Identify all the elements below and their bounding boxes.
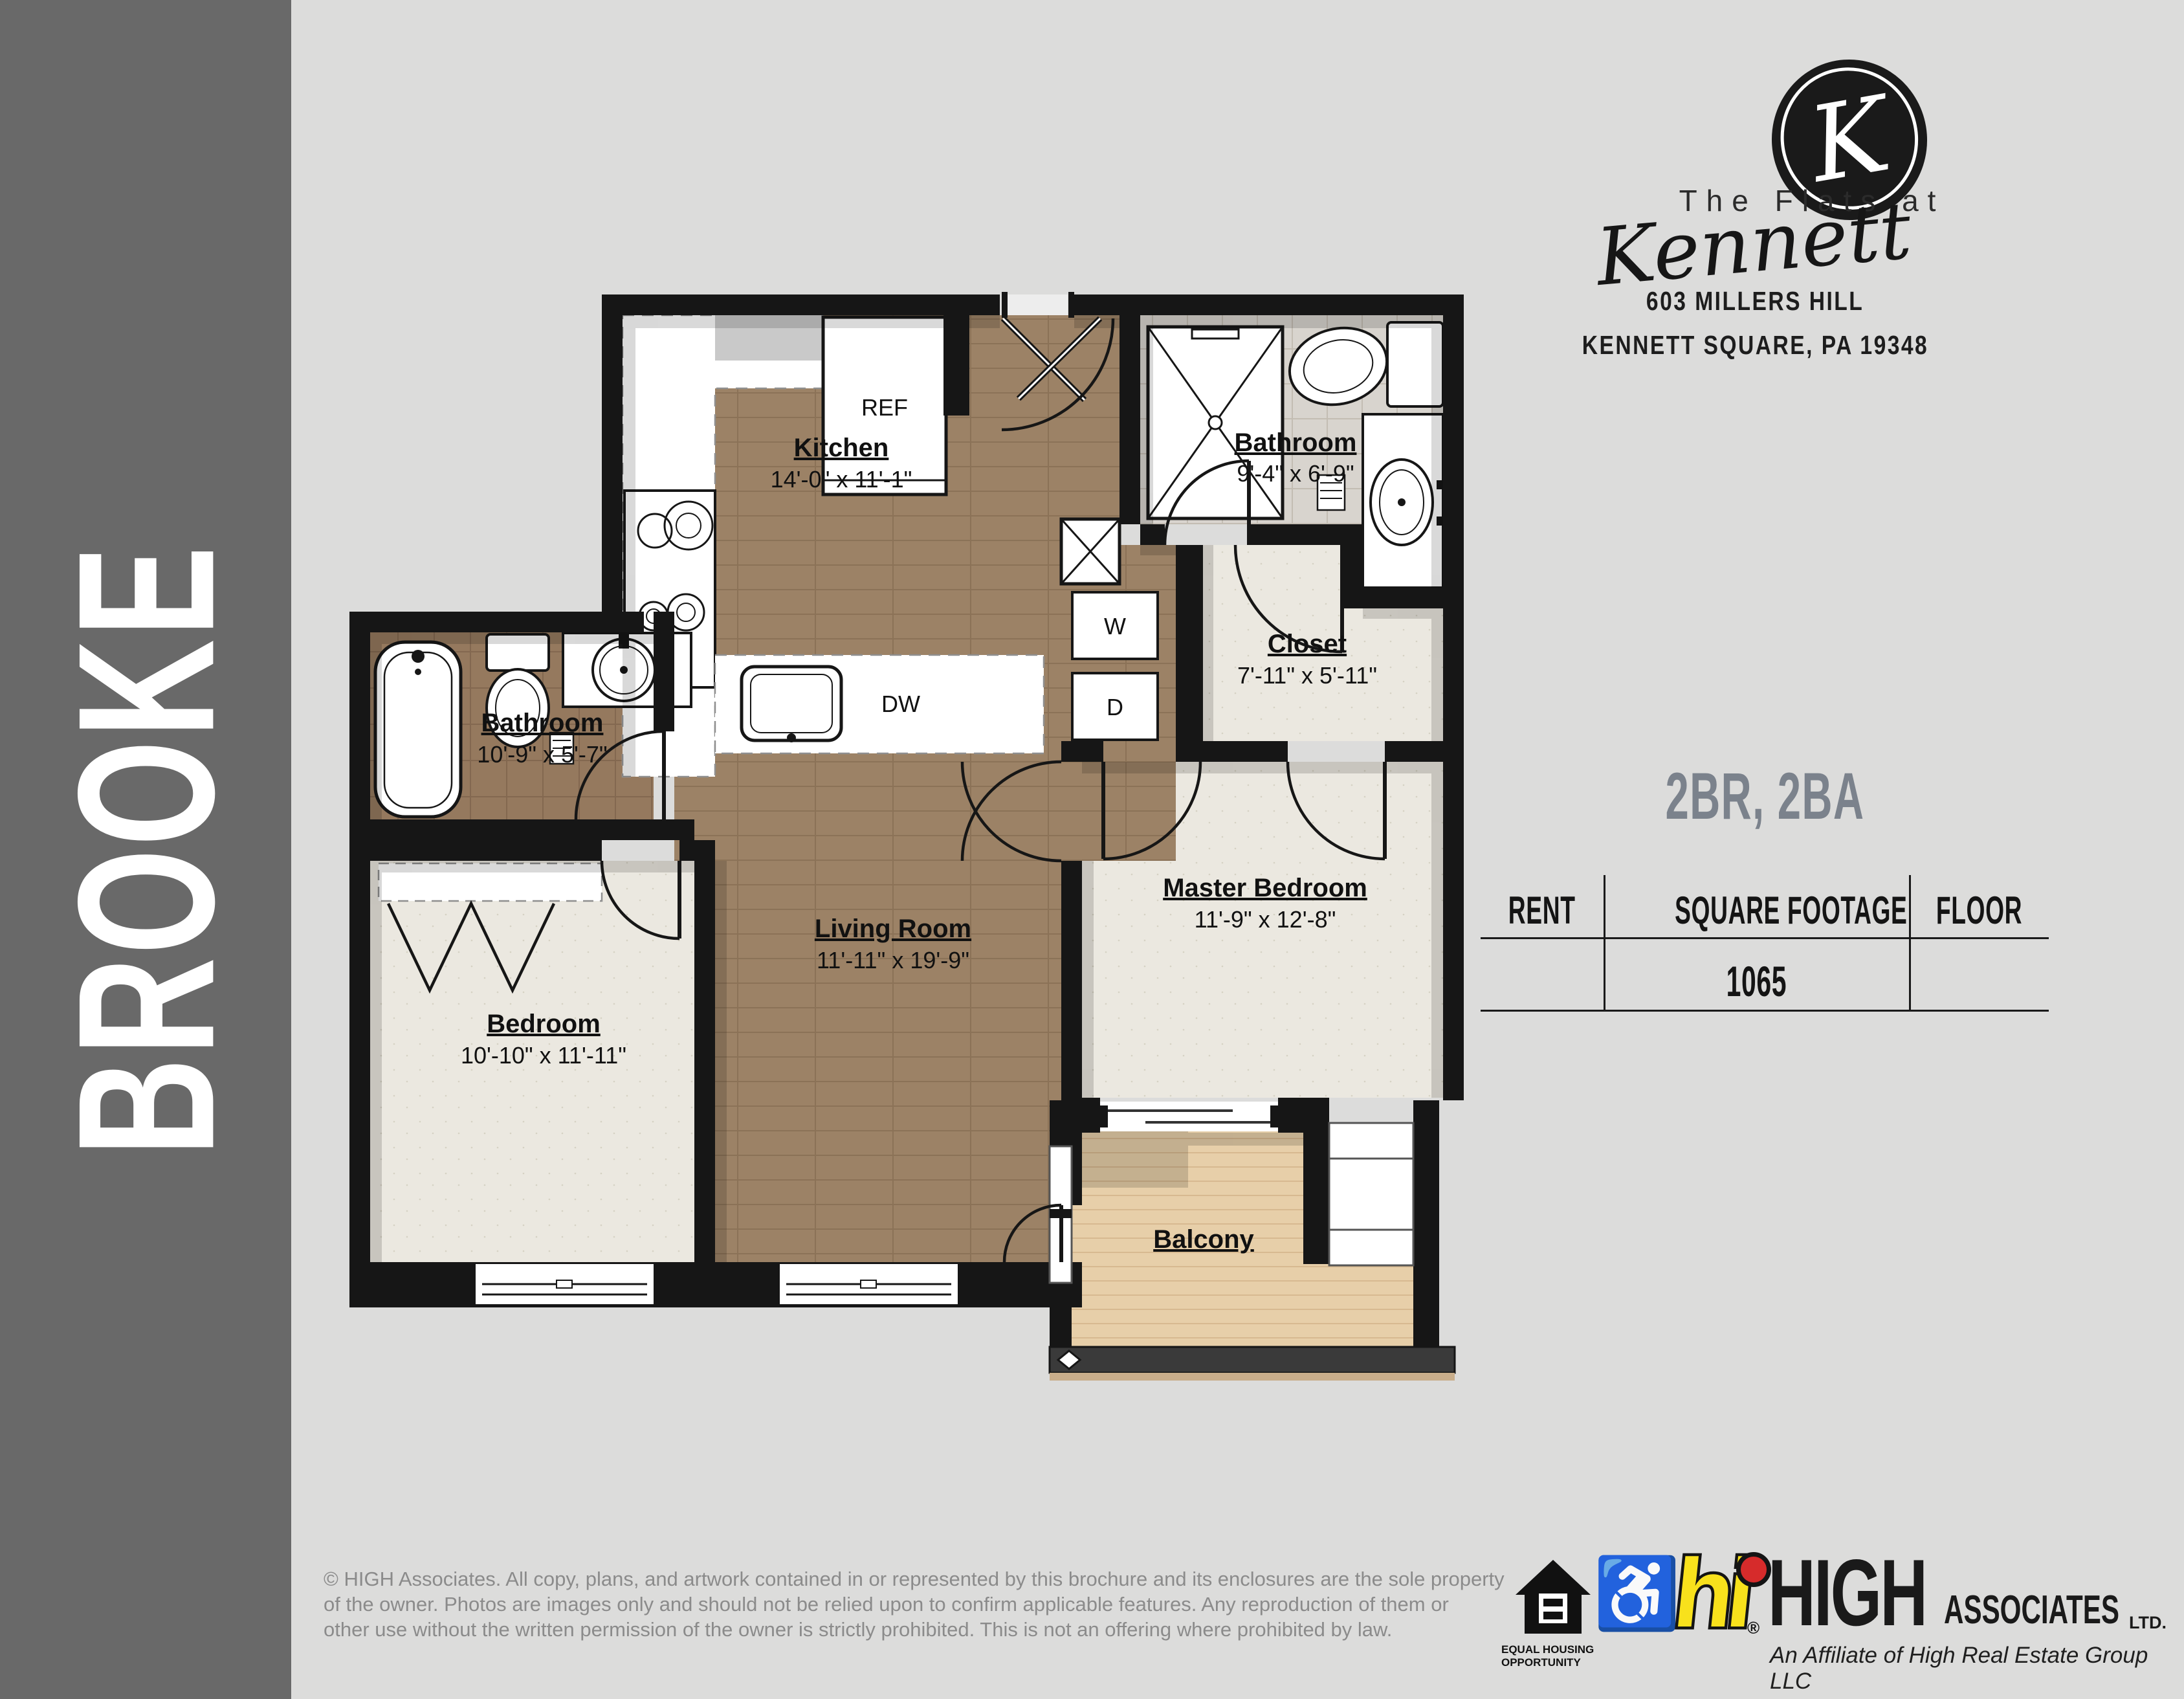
high-logo-ltd: LTD. <box>2129 1613 2167 1633</box>
accessibility-icon: ♿ <box>1593 1559 1680 1628</box>
high-logo-dot <box>1736 1552 1771 1587</box>
balcony-label: Balcony <box>1153 1225 1254 1254</box>
washer-label: W <box>1104 613 1126 639</box>
bedroom-label: Bedroom <box>487 1010 601 1038</box>
ref-label: REF <box>861 394 908 421</box>
side-panel: BROOKE <box>0 0 291 1699</box>
kitchen-label: Kitchen <box>794 434 889 462</box>
closet-label: Closet <box>1268 630 1347 658</box>
eho-line2: OPPORTUNITY <box>1501 1656 1605 1669</box>
brand-address2: KENNETT SQUARE, PA 19348 <box>1508 330 2003 361</box>
table-header-floor: FLOOR <box>1909 888 2049 933</box>
eho-line1: EQUAL HOUSING <box>1501 1643 1605 1656</box>
dryer-label: D <box>1107 694 1123 720</box>
bath2-dims: 9'-4" x 6'-9" <box>1237 460 1354 487</box>
living-dims: 11'-11" x 19'-9" <box>817 947 969 973</box>
table-value-rent <box>1481 957 1604 1006</box>
bedroom-dims: 10'-10" x 11'-11" <box>461 1042 626 1069</box>
table-header-rent: RENT <box>1481 888 1604 933</box>
table-hline-1 <box>1481 937 2049 939</box>
master-dims: 11'-9" x 12'-8" <box>1195 906 1336 933</box>
bath2-label: Bathroom <box>1235 428 1357 457</box>
copyright-text: © HIGH Associates. All copy, plans, and … <box>324 1566 1514 1642</box>
table-header-square-footage: SQUARE FOOTAGE <box>1604 888 1909 933</box>
table-hline-2 <box>1481 1010 2049 1012</box>
high-logo-tagline: An Affiliate of High Real Estate Group L… <box>1770 1643 2184 1694</box>
bath1-label: Bathroom <box>481 709 604 737</box>
table-value-floor <box>1909 957 2049 1006</box>
entry-opening <box>1006 294 1068 315</box>
living-label: Living Room <box>815 915 971 943</box>
kitchen-sink <box>742 667 841 740</box>
table-value-square-footage: 1065 <box>1604 957 1909 1006</box>
equal-housing-logo: EQUAL HOUSING OPPORTUNITY <box>1501 1557 1605 1669</box>
unit-type-title: 2BR, 2BA <box>1481 759 2049 834</box>
balcony-slider <box>1100 1102 1278 1131</box>
registered-mark: ® <box>1747 1618 1759 1638</box>
closet-dims: 7'-11" x 5'-11" <box>1237 662 1377 689</box>
floor-plan: Kitchen 14'-0" x 11'-1" Bathroom 9'-4" x… <box>343 285 1488 1385</box>
shower-head <box>1192 329 1239 339</box>
master-label: Master Bedroom <box>1163 874 1367 902</box>
bathtub <box>375 642 461 817</box>
kitchen-faucet <box>787 733 796 742</box>
bath1-dims: 10'-9" x 5'-7" <box>477 741 607 768</box>
equal-housing-icon <box>1514 1557 1592 1638</box>
plan-name: BROOKE <box>34 543 258 1156</box>
balcony-right-window <box>1329 1123 1413 1265</box>
brand-address1: 603 MILLERS HILL <box>1508 286 2003 316</box>
dw-label: DW <box>881 691 920 717</box>
brochure-page: BROOKE K The Flats at Kennett 603 MILLER… <box>0 0 2184 1699</box>
kitchen-dims: 14'-0" x 11'-1" <box>771 466 912 493</box>
